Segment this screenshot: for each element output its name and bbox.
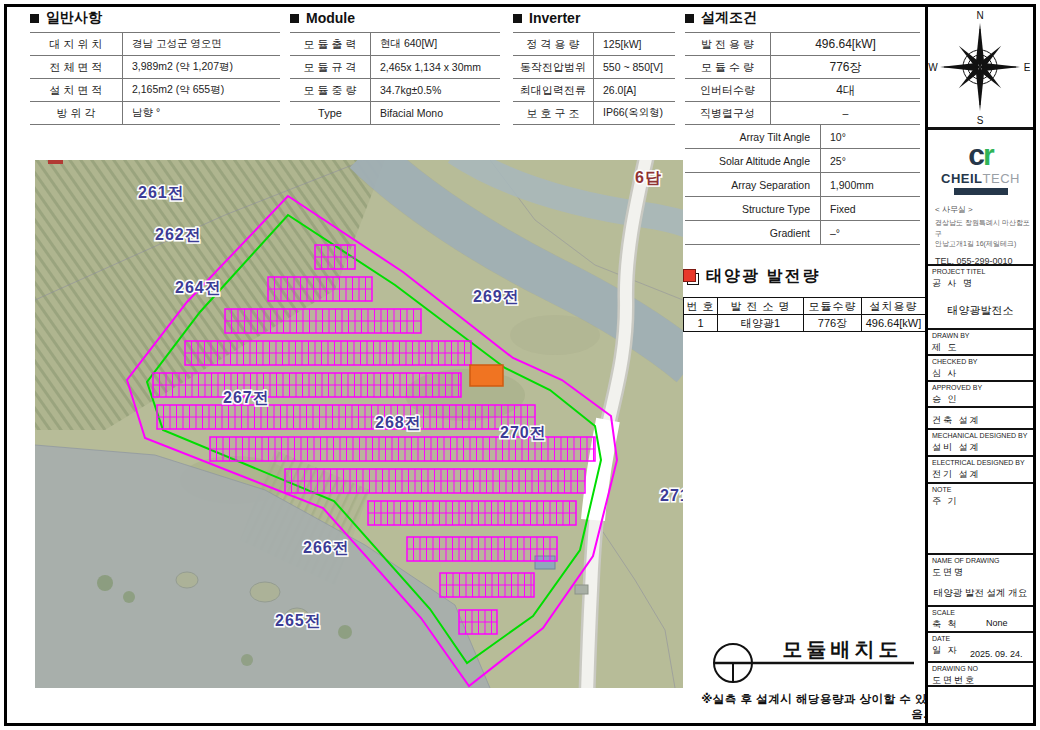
parcel-label: 265전 bbox=[275, 612, 322, 629]
titleblock-ko-label: 도면번호 bbox=[932, 674, 1029, 687]
titleblock-ko-label: 도면명 bbox=[932, 566, 1029, 579]
office-tel: TEL. 055-299-0010 bbox=[935, 256, 1013, 266]
row-value: 26.0[A] bbox=[593, 79, 675, 101]
titleblock-en-label: SCALE bbox=[932, 609, 1029, 617]
office-heading: < 사무실 > bbox=[935, 204, 1033, 215]
table-row: 설 치 면 적2,165m2 (약 655평) bbox=[30, 78, 280, 101]
row-label: 인버터수량 bbox=[685, 79, 770, 101]
cell: 496.64[kW] bbox=[862, 315, 926, 332]
titleblock-drawing-no: DRAWING NO 도면번호 bbox=[928, 663, 1033, 687]
col-header: 발 전 소 명 bbox=[718, 298, 804, 315]
parcel-label: 270전 bbox=[500, 424, 547, 441]
general-section-title: 일반사항 bbox=[30, 8, 280, 28]
table-row: 모 듈 규 격2,465x 1,134 x 30mm bbox=[290, 55, 500, 78]
titleblock-en-label: CHECKED BY bbox=[932, 358, 1029, 366]
table-row: 모 듈 출 력현대 640[W] bbox=[290, 32, 500, 55]
section-title-text: 일반사항 bbox=[46, 9, 102, 27]
row-value: 776장 bbox=[770, 56, 920, 78]
row-value: 2,165m2 (약 655평) bbox=[122, 79, 280, 101]
module-section-title: Module bbox=[290, 8, 500, 28]
compass-rose-icon: N S W E bbox=[928, 7, 1033, 127]
titleblock-ko-label: 승 인 bbox=[932, 393, 1029, 406]
table-row: 정 격 용 량125[kW] bbox=[513, 32, 675, 55]
titleblock-en-label: DRAWN BY bbox=[932, 332, 1029, 340]
compass-e-label: E bbox=[1024, 62, 1031, 73]
row-label: 보 호 구 조 bbox=[513, 102, 593, 124]
table-row: Array Separation1,900mm bbox=[685, 172, 920, 196]
row-label: Array Separation bbox=[685, 173, 820, 196]
row-value: 25° bbox=[820, 149, 920, 172]
row-value: – bbox=[770, 102, 920, 124]
company-name: CHEILTECH bbox=[928, 171, 1033, 186]
compass-w-label: W bbox=[928, 62, 938, 73]
row-label: 방 위 각 bbox=[30, 102, 122, 124]
titleblock-project: PROJECT TITEL 공 사 명 태양광발전소 bbox=[928, 266, 1033, 330]
titleblock-value: None bbox=[986, 618, 1008, 628]
general-info-table: 일반사항 대 지 위 치경남 고성군 영오면 전 체 면 적3,989m2 (약… bbox=[30, 8, 280, 125]
drawing-title: 모듈배치도 bbox=[765, 636, 920, 663]
titleblock-approved-by: APPROVED BY 승 인 bbox=[928, 382, 1033, 408]
row-value: Fixed bbox=[820, 197, 920, 220]
row-value: IP66(옥외형) bbox=[593, 102, 675, 124]
table-row: TypeBifacial Mono bbox=[290, 101, 500, 124]
col-header: 설치용량 bbox=[862, 298, 926, 315]
table-row: 최대입력전류26.0[A] bbox=[513, 78, 675, 101]
titleblock-note: NOTE 주 기 bbox=[928, 484, 1033, 555]
table-row: 대 지 위 치경남 고성군 영오면 bbox=[30, 32, 280, 55]
titleblock-value: 태양광발전소 bbox=[932, 303, 1029, 318]
row-value: 496.64[kW] bbox=[770, 33, 920, 55]
section-bullet-icon bbox=[685, 14, 694, 23]
office-info: < 사무실 > 경상남도 창원특례시 마산합포구 안낭고개1길 16(제일테크)… bbox=[928, 204, 1033, 266]
titleblock-architecture: 건축 설계 bbox=[928, 408, 1033, 430]
row-value: 4대 bbox=[770, 79, 920, 101]
row-value: 3,989m2 (약 1,207평) bbox=[122, 56, 280, 78]
titleblock-scale: SCALE 축 척 None bbox=[928, 607, 1033, 633]
col-header: 모듈수량 bbox=[804, 298, 862, 315]
titleblock-electrical: ELECTRICAL DESIGNED BY 전기 설계 bbox=[928, 457, 1033, 484]
titleblock-en-label: DRAWING NO bbox=[932, 665, 1029, 673]
company-logo-box: cr CHEILTECH < 사무실 > 경상남도 창원특례시 마산합포구 안낭… bbox=[928, 130, 1033, 266]
parcel-label: 262전 bbox=[155, 226, 202, 243]
drawing-sheet: 일반사항 대 지 위 치경남 고성군 영오면 전 체 면 적3,989m2 (약… bbox=[0, 0, 1040, 730]
titleblock-en-label: NAME OF DRAWING bbox=[932, 557, 1029, 565]
parcel-label: 268전 bbox=[375, 414, 422, 431]
table-row: Solar Altitude Angle25° bbox=[685, 148, 920, 172]
titleblock-en-label: MECHANICAL DESIGNED BY bbox=[932, 432, 1029, 440]
table-row: 보 호 구 조IP66(옥외형) bbox=[513, 101, 675, 124]
row-label: 직병렬구성 bbox=[685, 102, 770, 124]
row-label: Gradient bbox=[685, 221, 820, 244]
compass-box: N S W E bbox=[928, 7, 1033, 130]
table-row: Array Tilt Angle10° bbox=[685, 124, 920, 148]
row-value: 2,465x 1,134 x 30mm bbox=[370, 56, 500, 78]
cell: 776장 bbox=[804, 315, 862, 332]
row-label: 모 듈 중 량 bbox=[290, 79, 370, 101]
row-label: Type bbox=[290, 102, 370, 124]
titleblock-ko-label: 공 사 명 bbox=[932, 277, 1029, 290]
titleblock-ko-label: 주 기 bbox=[932, 495, 1029, 508]
layered-square-icon bbox=[683, 269, 698, 284]
parcel-label: 269전 bbox=[473, 288, 520, 305]
design-conditions-table: 설계조건 발 전 용 량496.64[kW] 모 듈 수 량776장 인버터수량… bbox=[685, 8, 920, 245]
table-row: 1 태양광1 776장 496.64[kW] bbox=[684, 315, 926, 332]
titleblock-en-label: APPROVED BY bbox=[932, 384, 1029, 392]
row-label: Array Tilt Angle bbox=[685, 125, 820, 148]
titleblock-value: 태양광 발전 설계 개요 bbox=[932, 587, 1029, 600]
row-label: Structure Type bbox=[685, 197, 820, 220]
row-label: 동작전압범위 bbox=[513, 56, 593, 78]
parcel-label: 261전 bbox=[138, 184, 185, 201]
pv-generation-table: 번 호 발 전 소 명 모듈수량 설치용량 1 태양광1 776장 496.64… bbox=[683, 297, 926, 332]
titleblock-drawn-by: DRAWN BY 제 도 bbox=[928, 330, 1033, 356]
titleblock-ko-label: 축 척 bbox=[932, 618, 1029, 631]
table-row: 동작전압범위550 ~ 850[V] bbox=[513, 55, 675, 78]
table-header-row: 번 호 발 전 소 명 모듈수량 설치용량 bbox=[684, 298, 926, 315]
module-table: Module 모 듈 출 력현대 640[W] 모 듈 규 격2,465x 1,… bbox=[290, 8, 500, 125]
parcel-label: 6답 bbox=[635, 169, 662, 186]
row-value: 경남 고성군 영오면 bbox=[122, 33, 280, 55]
section-bullet-icon bbox=[290, 14, 299, 23]
row-label: 최대입력전류 bbox=[513, 79, 593, 101]
titleblock-ko-label: 전기 설계 bbox=[932, 468, 1029, 481]
row-label: 대 지 위 치 bbox=[30, 33, 122, 55]
titleblock-ko-label: 심 사 bbox=[932, 367, 1029, 380]
titleblock-en-label: ELECTRICAL DESIGNED BY bbox=[932, 459, 1029, 467]
titleblock-value: 2025. 09. 24. bbox=[970, 649, 1023, 659]
row-label: 전 체 면 적 bbox=[30, 56, 122, 78]
titleblock-en-label: PROJECT TITEL bbox=[932, 268, 1029, 276]
row-value: Bifacial Mono bbox=[370, 102, 500, 124]
titleblock-date: DATE 일 자 2025. 09. 24. bbox=[928, 633, 1033, 663]
section-title-text: Module bbox=[306, 10, 355, 26]
site-map: 261전 262전 264전 269전 267전 268전 270전 271 2… bbox=[35, 160, 683, 688]
table-row: 직병렬구성– bbox=[685, 101, 920, 124]
titleblock-en-label: NOTE bbox=[932, 486, 1029, 494]
logo-badge bbox=[954, 188, 1008, 195]
office-address: 경상남도 창원특례시 마산합포구 안낭고개1길 16(제일테크) bbox=[935, 218, 1033, 250]
compass-n-label: N bbox=[976, 10, 983, 21]
pv-generation-title-text: 태양광 발전량 bbox=[706, 266, 820, 287]
row-value: 550 ~ 850[V] bbox=[593, 56, 675, 78]
title-block-sidebar: N S W E cr CHEILTECH < 사무실 > 경상남도 창원특례시 … bbox=[925, 7, 1033, 723]
row-label: 모 듈 출 력 bbox=[290, 33, 370, 55]
parcel-label: 267전 bbox=[223, 389, 270, 406]
row-value: 현대 640[W] bbox=[370, 33, 500, 55]
titleblock-mechanical: MECHANICAL DESIGNED BY 설비 설계 bbox=[928, 430, 1033, 457]
row-value: 1,900mm bbox=[820, 173, 920, 196]
design-section-title: 설계조건 bbox=[685, 8, 920, 28]
titleblock-ko-label: 설비 설계 bbox=[932, 441, 1029, 454]
row-value: 125[kW] bbox=[593, 33, 675, 55]
cell: 1 bbox=[684, 315, 718, 332]
row-value: 10° bbox=[820, 125, 920, 148]
titleblock-drawing-name: NAME OF DRAWING 도면명 태양광 발전 설계 개요 bbox=[928, 555, 1033, 607]
table-row: 모 듈 수 량776장 bbox=[685, 55, 920, 78]
row-label: 모 듈 규 격 bbox=[290, 56, 370, 78]
titleblock-empty bbox=[928, 687, 1033, 723]
table-row: 발 전 용 량496.64[kW] bbox=[685, 32, 920, 55]
table-row: 모 듈 중 량34.7kg±0.5% bbox=[290, 78, 500, 101]
col-header: 번 호 bbox=[684, 298, 718, 315]
parcel-label: 266전 bbox=[303, 539, 350, 556]
section-title-text: 설계조건 bbox=[701, 9, 757, 27]
row-label: 정 격 용 량 bbox=[513, 33, 593, 55]
compass-s-label: S bbox=[977, 115, 984, 126]
row-value: 34.7kg±0.5% bbox=[370, 79, 500, 101]
titleblock-ko-label: 건축 설계 bbox=[932, 414, 1029, 427]
titleblock-checked-by: CHECKED BY 심 사 bbox=[928, 356, 1033, 382]
cheiltech-logo-icon: cr bbox=[928, 140, 1033, 170]
table-row: 인버터수량4대 bbox=[685, 78, 920, 101]
section-title-text: Inverter bbox=[529, 10, 580, 26]
section-bullet-icon bbox=[30, 14, 39, 23]
titleblock-ko-label: 제 도 bbox=[932, 341, 1029, 354]
inverter-section-title: Inverter bbox=[513, 8, 675, 28]
inverter-table: Inverter 정 격 용 량125[kW] 동작전압범위550 ~ 850[… bbox=[513, 8, 675, 125]
office-contact: TEL. 055-299-0010 FAX. 055-296-0044 bbox=[935, 255, 1033, 267]
row-value: –° bbox=[820, 221, 920, 244]
cell: 태양광1 bbox=[718, 315, 804, 332]
parcel-label: 264전 bbox=[175, 279, 222, 296]
row-label: Solar Altitude Angle bbox=[685, 149, 820, 172]
pv-generation-title: 태양광 발전량 bbox=[683, 266, 820, 287]
table-row: 전 체 면 적3,989m2 (약 1,207평) bbox=[30, 55, 280, 78]
row-label: 발 전 용 량 bbox=[685, 33, 770, 55]
section-bullet-icon bbox=[513, 14, 522, 23]
row-label: 설 치 면 적 bbox=[30, 79, 122, 101]
survey-note: ※실측 후 설계시 해당용량과 상이할 수 있음. bbox=[690, 692, 927, 722]
table-row: Structure TypeFixed bbox=[685, 196, 920, 220]
clipped-label-mark bbox=[48, 160, 63, 164]
row-value: 남향 ° bbox=[122, 102, 280, 124]
titleblock-en-label: DATE bbox=[932, 635, 1029, 643]
equipment-pad bbox=[470, 365, 503, 386]
table-row: 방 위 각남향 ° bbox=[30, 101, 280, 124]
row-label: 모 듈 수 량 bbox=[685, 56, 770, 78]
table-row: Gradient–° bbox=[685, 220, 920, 244]
parcel-label: 271 bbox=[660, 487, 683, 504]
